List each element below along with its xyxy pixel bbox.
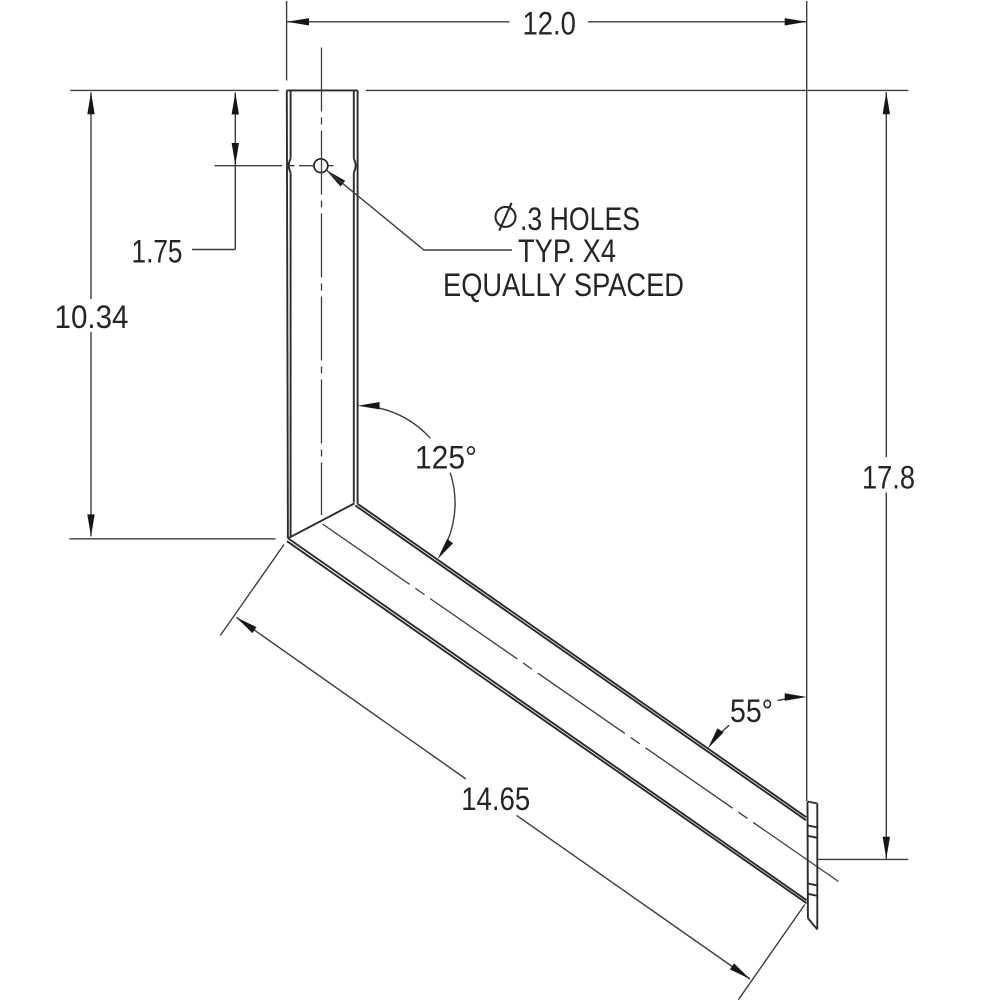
svg-text:17.8: 17.8	[862, 459, 915, 495]
svg-text:14.65: 14.65	[461, 781, 530, 817]
svg-text:125°: 125°	[415, 439, 477, 475]
svg-text:10.34: 10.34	[55, 299, 129, 335]
svg-text:55°: 55°	[730, 693, 773, 729]
svg-text:12.0: 12.0	[522, 5, 576, 41]
svg-text:EQUALLY SPACED: EQUALLY SPACED	[443, 267, 684, 303]
svg-text:.3 HOLES: .3 HOLES	[520, 201, 640, 237]
svg-text:TYP. X4: TYP. X4	[518, 233, 616, 269]
svg-text:1.75: 1.75	[132, 233, 183, 269]
